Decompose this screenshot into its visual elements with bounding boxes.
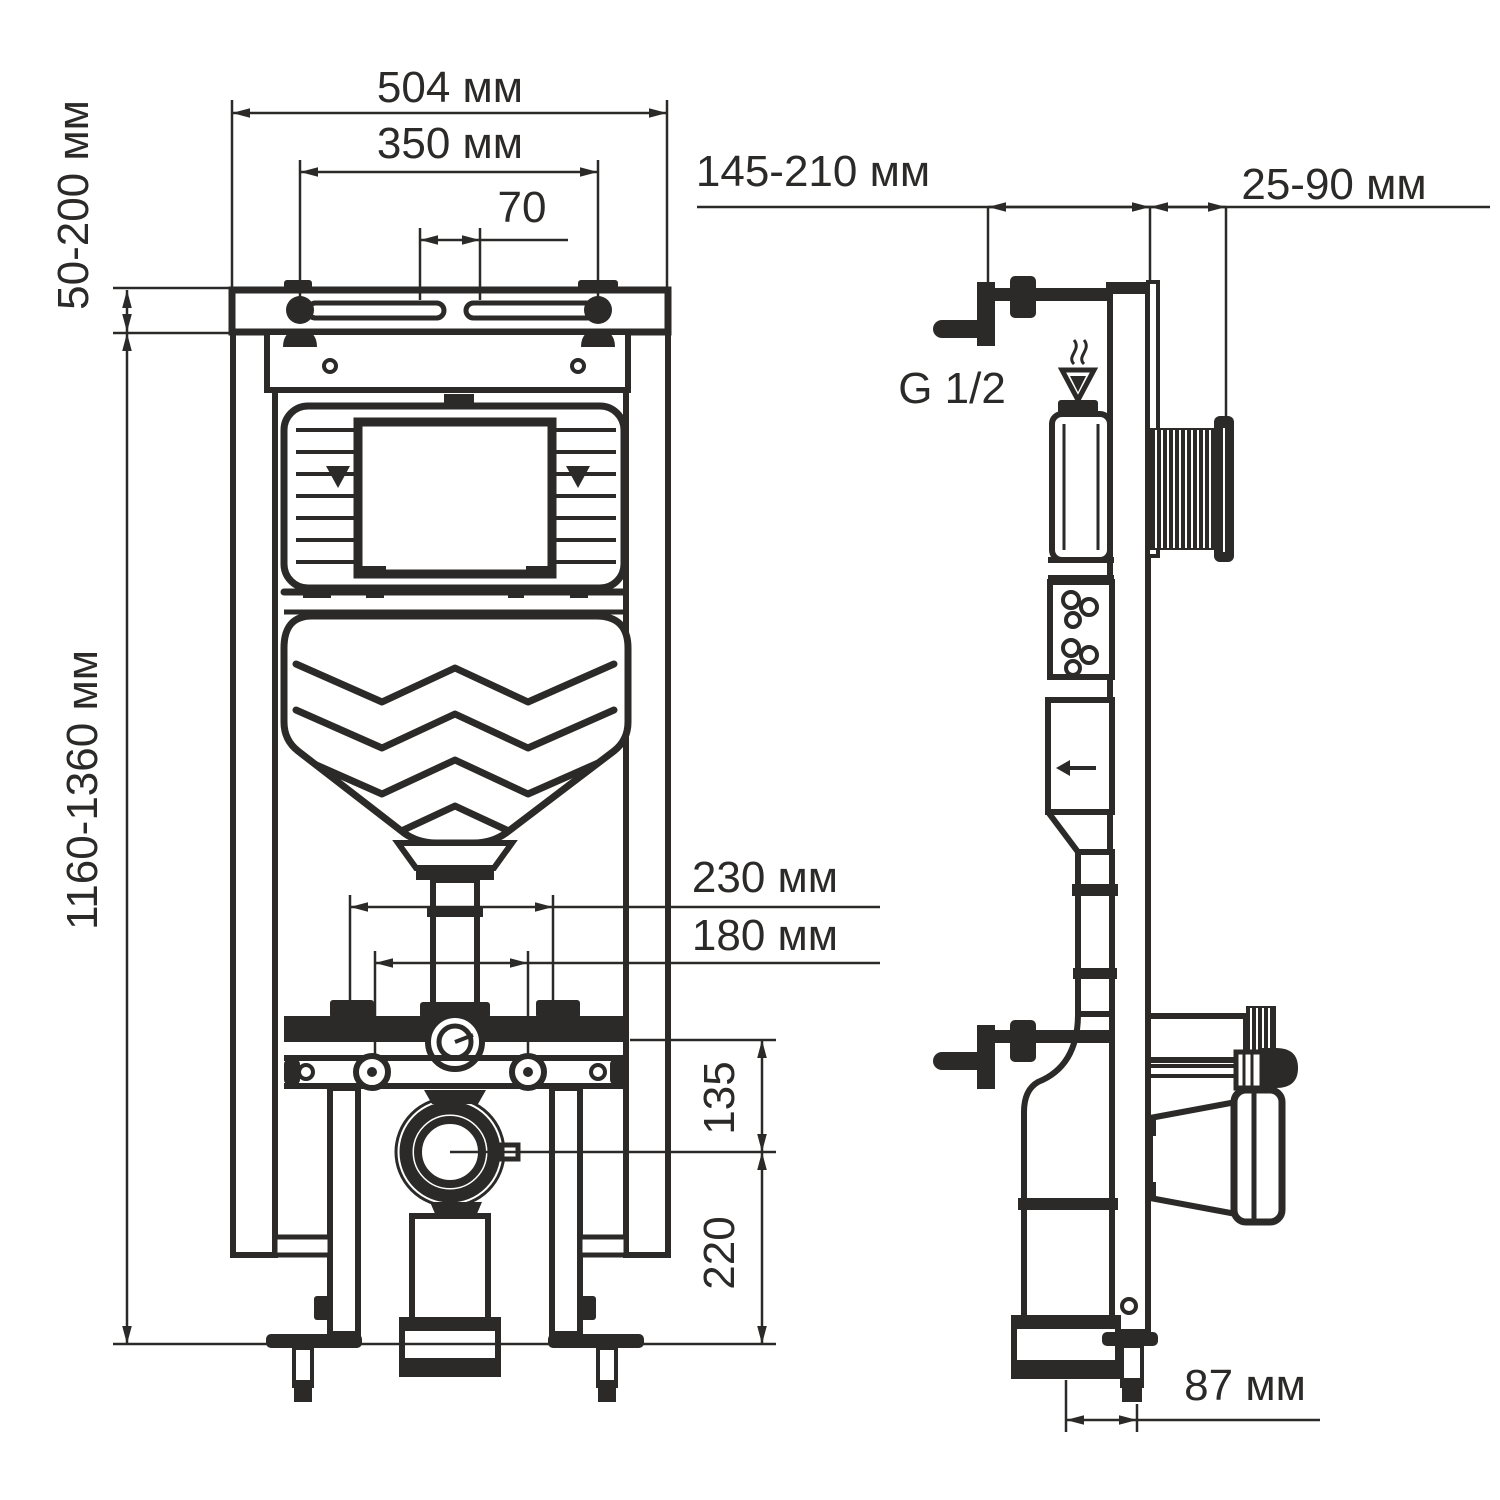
dim-inlet-to-outlet-label: 135 (695, 1061, 744, 1134)
top-hanger-bar (232, 280, 668, 332)
dim-wc-bolts-narrow-label: 180 мм (692, 911, 838, 960)
flush-button-rod (1150, 416, 1234, 562)
cistern-tank (284, 616, 628, 843)
outlet-gasket-flange (1234, 1090, 1282, 1222)
flush-pipe-side (1011, 852, 1121, 1376)
dim-overall-width: 504 мм (232, 63, 667, 290)
flush-unit-access-panel (284, 394, 624, 588)
flush-pipe-front (398, 843, 512, 1016)
side-view (933, 276, 1298, 1402)
water-flow-icon (1072, 340, 1087, 364)
wall-bracket-top (933, 276, 1112, 346)
panel-window (358, 422, 552, 574)
dim-wc-bolts-wide-label: 230 мм (692, 853, 838, 902)
dim-frame-height-range-label: 1160-1360 мм (58, 650, 107, 930)
water-supply-symbol (1062, 340, 1094, 400)
foot-plate-right (548, 1334, 644, 1348)
frame-top-cap (1106, 282, 1152, 294)
dim-button-rod-range: 25-90 мм (1150, 160, 1427, 416)
dim-button-rod-range-label: 25-90 мм (1241, 160, 1426, 209)
anchor-pin (1262, 1048, 1298, 1088)
outlet-assembly-side (1146, 1006, 1298, 1222)
dim-top-bracket-range-label: 50-200 мм (49, 100, 98, 310)
water-connection-label: G 1/2 (898, 364, 1006, 413)
waste-outlet-front (396, 1090, 518, 1374)
hanger-stud-left (286, 296, 314, 324)
dim-outlet-to-floor-label: 220 (695, 1216, 744, 1289)
panel-top-tab (444, 394, 474, 408)
hanger-stud-right (584, 296, 612, 324)
dim-outlet-to-floor: 220 (695, 1152, 762, 1344)
dim-overall-width-label: 504 мм (377, 63, 523, 112)
wc-outlet-spigot (1150, 1102, 1236, 1214)
waste-elbow-side (1024, 1014, 1112, 1318)
dim-wall-distance-range-label: 145-210 мм (696, 147, 930, 196)
cistern-side-profile (1048, 700, 1112, 852)
foot-plate-left (266, 1334, 362, 1348)
dim-stud-spacing-label: 350 мм (377, 119, 523, 168)
dim-stud-spacing: 350 мм (300, 119, 598, 298)
flush-mechanism (1050, 582, 1112, 677)
dim-slot-offset-label: 70 (498, 183, 547, 232)
wc-frame-technical-drawing: 504 мм 350 мм 70 50-200 мм 1160-1360 мм (0, 0, 1500, 1500)
frame-upright (1110, 288, 1148, 1332)
label-water-connection: G 1/2 (898, 364, 1006, 413)
upper-plate (267, 330, 628, 390)
tank-top-band (284, 588, 624, 612)
waste-pipe-front (412, 1216, 488, 1322)
dim-slot-offset: 70 (420, 183, 568, 300)
installation-drawing-page: 504 мм 350 мм 70 50-200 мм 1160-1360 мм (0, 0, 1500, 1500)
fill-valve (1048, 400, 1114, 677)
front-view (232, 280, 668, 1402)
dim-outlet-wall-offset-label: 87 мм (1184, 1361, 1306, 1410)
